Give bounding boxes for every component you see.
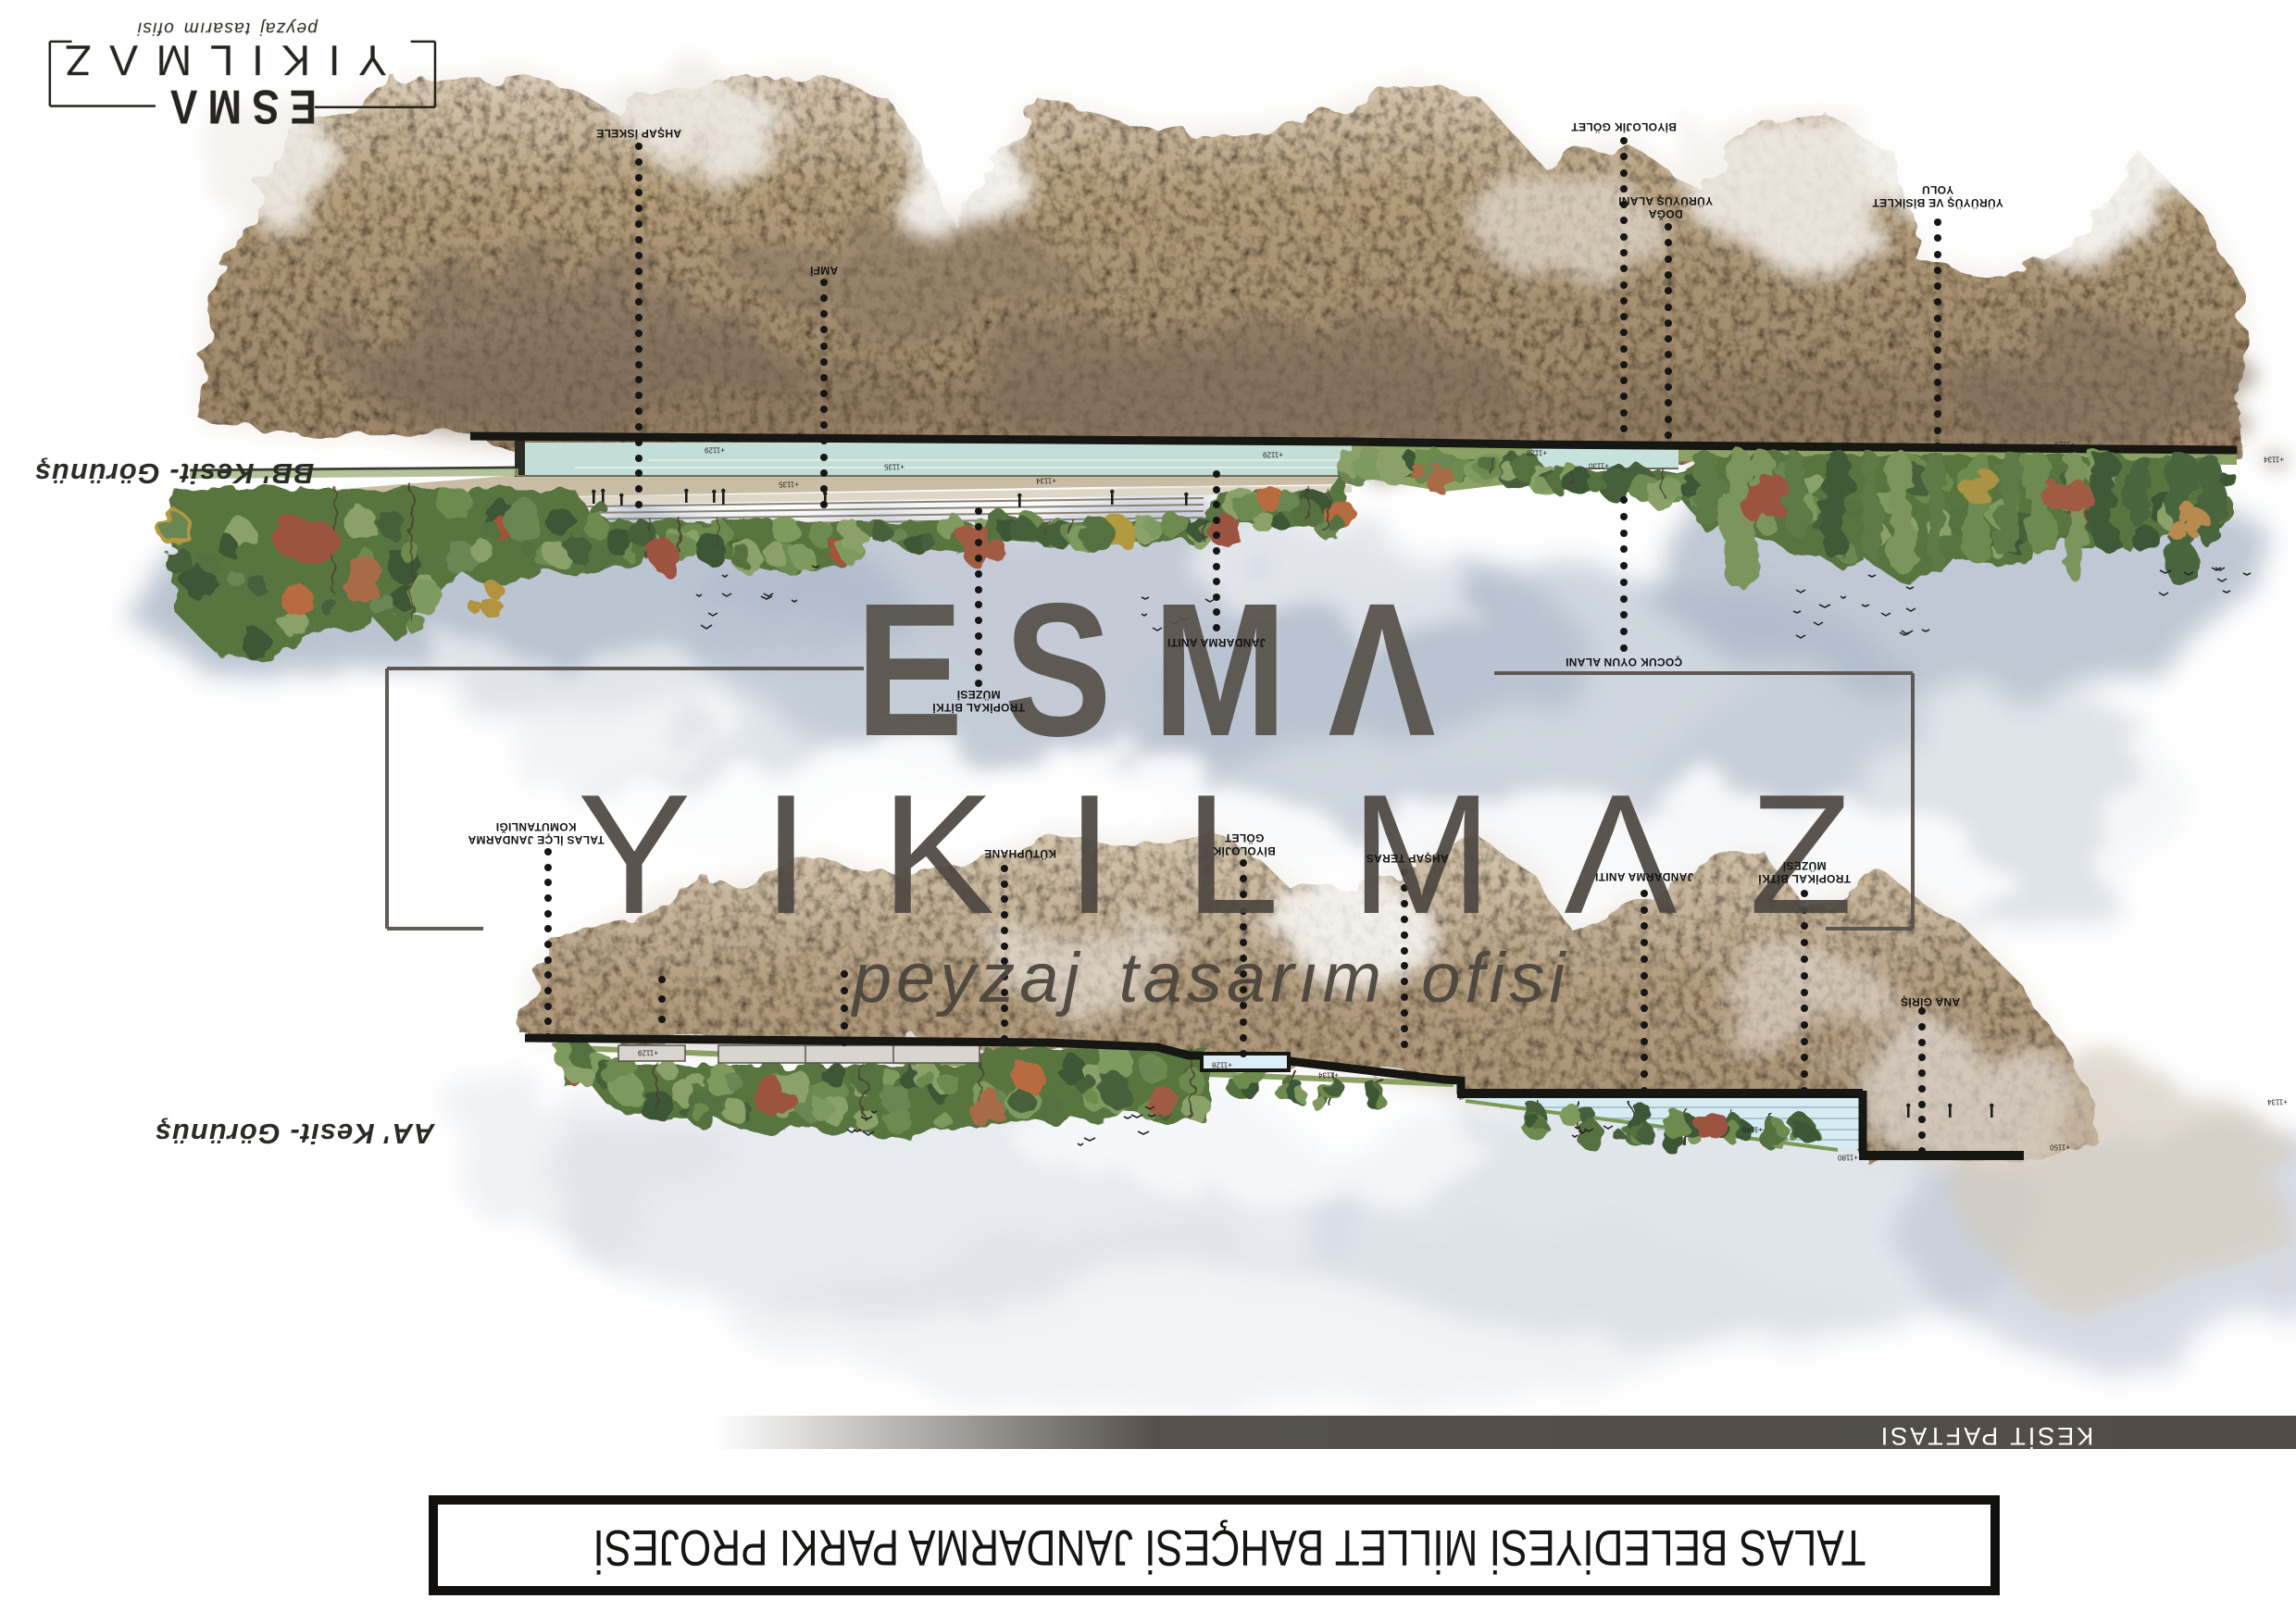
svg-text:peyzaj tasarım ofisi: peyzaj tasarım ofisi [851, 939, 1569, 1018]
svg-text:ESMΛ: ESMΛ [855, 565, 1477, 776]
svg-text:KESİT PAFTASI: KESİT PAFTASI [1878, 1422, 2094, 1451]
svg-text:peyzaj tasarım ofisi: peyzaj tasarım ofisi [136, 19, 318, 38]
svg-text:YIKILMΛZ: YIKILMΛZ [47, 36, 387, 84]
svg-text:ESMΛ: ESMΛ [160, 80, 317, 132]
svg-text:TALAS BELEDİYESİ MİLLET BAHÇES: TALAS BELEDİYESİ MİLLET BAHÇESİ JANDARMA… [593, 1519, 1866, 1577]
